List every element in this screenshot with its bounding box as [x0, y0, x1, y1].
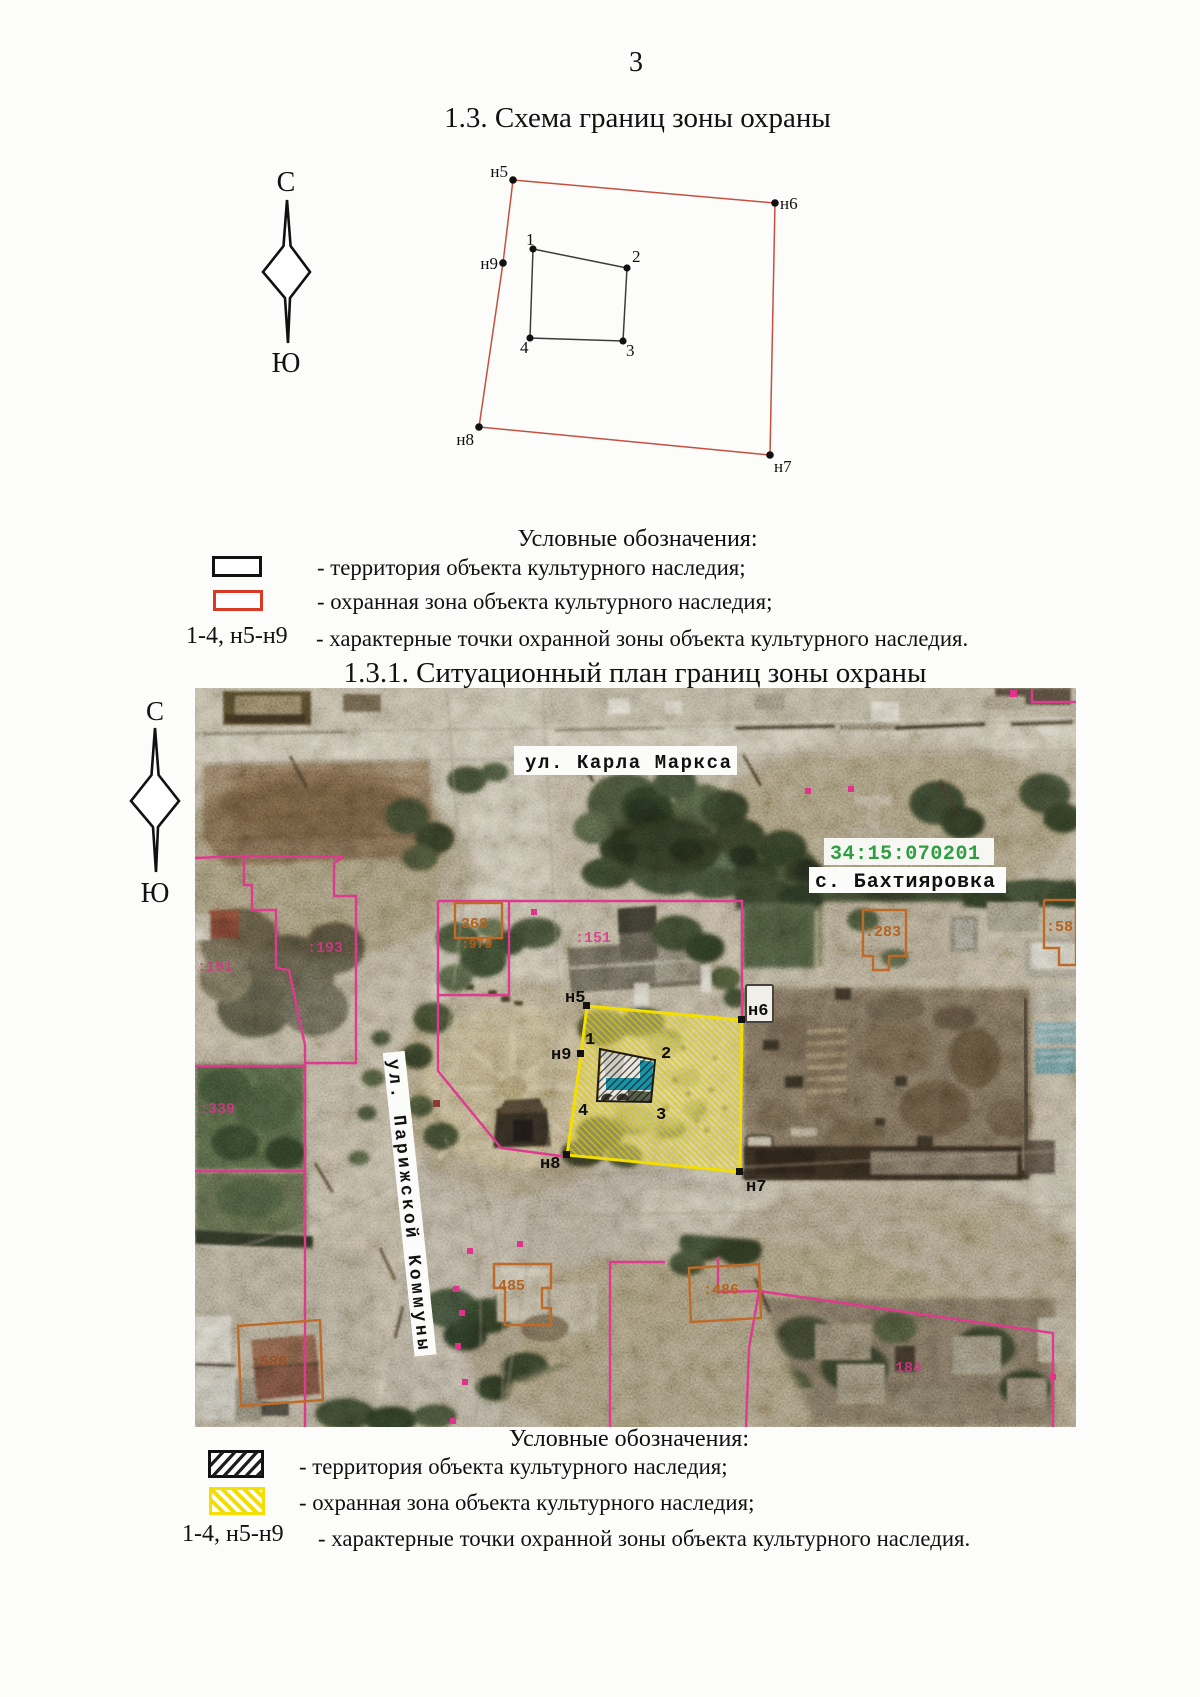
svg-text:н5: н5 [565, 989, 585, 1008]
svg-text:н7: н7 [746, 1178, 766, 1197]
svg-text::193: :193 [307, 940, 343, 957]
svg-text::979: :979 [461, 937, 492, 952]
svg-text:н6: н6 [780, 194, 798, 213]
svg-text:с. Бахтияровка: с. Бахтияровка [815, 871, 995, 894]
svg-text:Ю: Ю [272, 348, 301, 379]
svg-text:34:15:070201: 34:15:070201 [830, 843, 980, 866]
svg-text:485: 485 [498, 1278, 525, 1295]
svg-text:4: 4 [520, 338, 529, 357]
svg-text:ул. Карла Маркса: ул. Карла Маркса [525, 752, 731, 774]
svg-text::191: :191 [197, 959, 233, 976]
svg-text:3: 3 [656, 1106, 666, 1125]
svg-text::486: :486 [703, 1282, 739, 1299]
svg-text:н5: н5 [490, 162, 508, 181]
svg-text:Ю: Ю [141, 878, 170, 908]
svg-text:н7: н7 [774, 457, 792, 476]
svg-text:4: 4 [578, 1102, 588, 1121]
svg-text::151: :151 [575, 930, 611, 947]
svg-text:н9: н9 [551, 1046, 571, 1065]
svg-text:н8: н8 [456, 430, 474, 449]
svg-text:2: 2 [661, 1045, 671, 1064]
svg-text:С: С [277, 167, 296, 198]
svg-text:1: 1 [526, 230, 535, 249]
svg-text:н9: н9 [480, 254, 498, 273]
svg-text:368: 368 [461, 916, 488, 933]
svg-text:С: С [146, 696, 164, 726]
svg-text:2: 2 [632, 247, 641, 266]
svg-text::58: :58 [1046, 919, 1073, 936]
svg-text::588: :588 [251, 1354, 287, 1371]
svg-text::283: :283 [865, 924, 901, 941]
svg-text::339: :339 [199, 1101, 235, 1118]
svg-text:н8: н8 [540, 1155, 560, 1174]
svg-text:н6: н6 [748, 1002, 768, 1021]
svg-text:3: 3 [626, 341, 635, 360]
svg-text:184: 184 [895, 1360, 922, 1377]
svg-text:1: 1 [585, 1031, 595, 1050]
